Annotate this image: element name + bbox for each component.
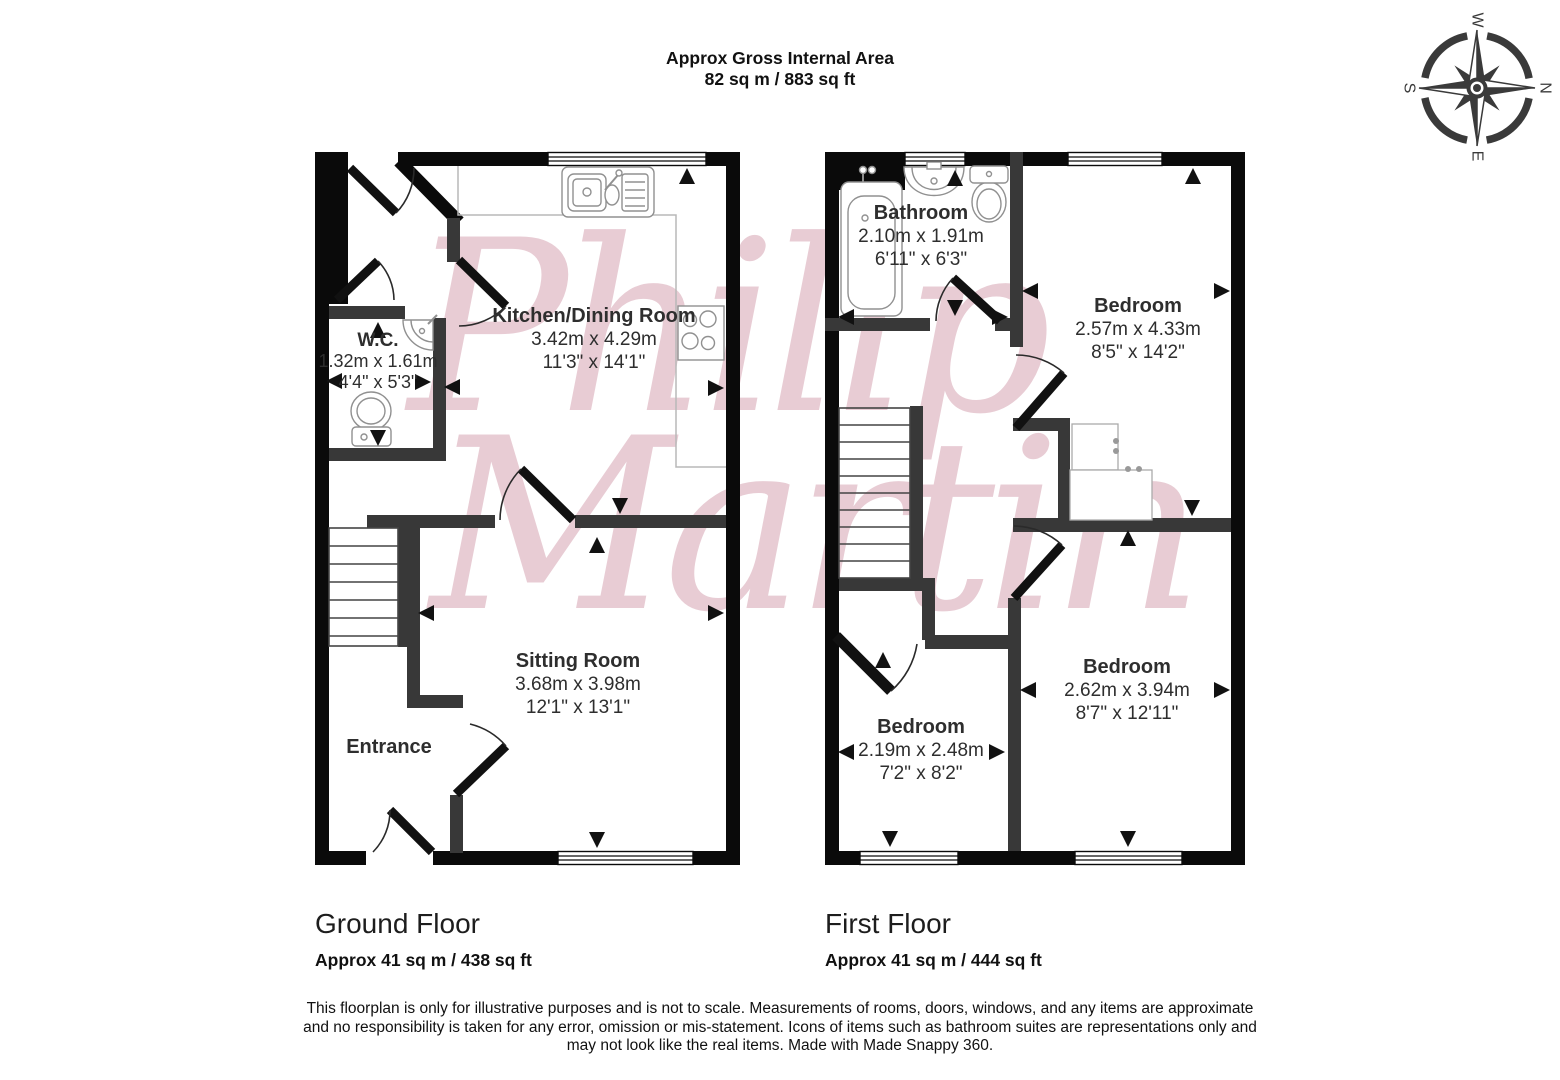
first-floor-caption: First Floor Approx 41 sq m / 444 sq ft (825, 908, 1042, 971)
floorplan-canvas: N E S W (0, 0, 1560, 1080)
wall (910, 406, 923, 578)
wall (367, 515, 495, 528)
door-leaf (836, 278, 1064, 691)
wall (925, 635, 1008, 649)
first-floor-name: First Floor (825, 908, 1042, 940)
sink-icon (562, 167, 654, 217)
compass-north-label: N (1537, 82, 1554, 94)
wall (706, 152, 740, 166)
room-label-bathroom: Bathroom 2.10m x 1.91m 6'11" x 6'3" (858, 202, 984, 271)
title-line1: Approx Gross Internal Area (666, 48, 894, 69)
wall (922, 578, 935, 640)
page-title: Approx Gross Internal Area 82 sq m / 883… (666, 48, 894, 90)
wall (433, 851, 558, 865)
wall (1008, 598, 1021, 851)
ground-floor-caption: Ground Floor Approx 41 sq m / 438 sq ft (315, 908, 532, 971)
wall (447, 218, 460, 262)
stairs-ground (329, 528, 398, 646)
room-label-entrance: Entrance (346, 736, 432, 759)
compass-rose: N E S W (1401, 12, 1554, 161)
wall (329, 448, 437, 461)
wall (450, 795, 463, 853)
wall (407, 528, 420, 708)
room-label-bedroom2: Bedroom 2.19m x 2.48m 7'2" x 8'2" (858, 716, 984, 785)
room-label-bedroom3: Bedroom 2.62m x 3.94m 8'7" x 12'11" (1064, 656, 1190, 725)
title-line2: 82 sq m / 883 sq ft (666, 69, 894, 90)
wall (407, 695, 463, 708)
ground-floor-name: Ground Floor (315, 908, 532, 940)
wall (575, 515, 726, 528)
wall (958, 851, 1075, 865)
wall (839, 578, 935, 591)
room-label-kitchen: Kitchen/Dining Room 3.42m x 4.29m 11'3" … (492, 305, 695, 374)
toilet-icon (351, 392, 391, 446)
ground-floor-area: Approx 41 sq m / 438 sq ft (315, 950, 532, 971)
wall (726, 152, 740, 865)
furniture-icon (1070, 424, 1152, 520)
wall (315, 851, 366, 865)
disclaimer-line1: This floorplan is only for illustrative … (303, 1000, 1257, 1019)
wall (329, 306, 405, 319)
wall (398, 152, 548, 166)
first-floor-area: Approx 41 sq m / 444 sq ft (825, 950, 1042, 971)
room-label-wc: W.C. 1.32m x 1.61m 4'4" x 5'3" (318, 330, 437, 393)
disclaimer-line3: may not look like the real items. Made w… (303, 1037, 1257, 1056)
wall (825, 152, 839, 865)
wall (1010, 152, 1023, 347)
disclaimer-line2: and no responsibility is taken for any e… (303, 1019, 1257, 1038)
disclaimer: This floorplan is only for illustrative … (303, 1000, 1257, 1056)
compass-west-label: W (1469, 12, 1486, 28)
wall (315, 152, 329, 865)
floorplan-page: Philip Martin (0, 0, 1560, 1080)
stairs-first (839, 408, 910, 578)
wall (825, 851, 860, 865)
wall (1231, 152, 1245, 865)
room-label-sitting: Sitting Room 3.68m x 3.98m 12'1" x 13'1" (515, 650, 641, 719)
wall (1162, 152, 1245, 166)
wall-diagonal (399, 161, 459, 222)
compass-south-label: S (1401, 83, 1418, 94)
wall (1058, 431, 1070, 522)
wall (693, 851, 740, 865)
compass-east-label: E (1469, 151, 1486, 162)
wall (825, 318, 930, 331)
wall (1182, 851, 1245, 865)
window (548, 153, 706, 865)
room-label-bedroom1: Bedroom 2.57m x 4.33m 8'5" x 14'2" (1075, 295, 1201, 364)
